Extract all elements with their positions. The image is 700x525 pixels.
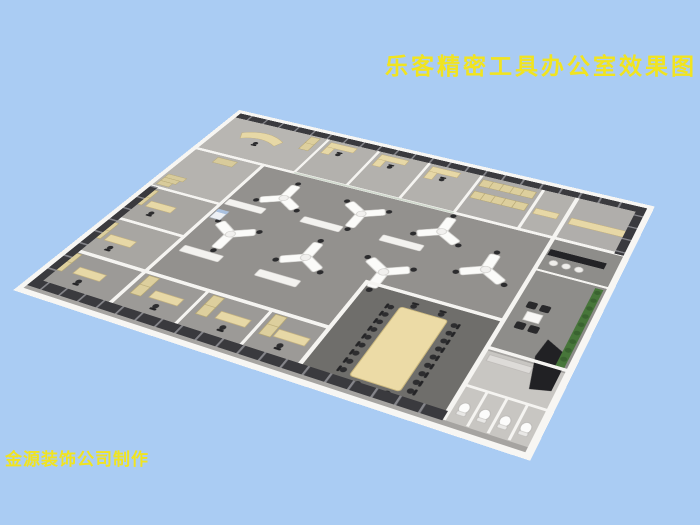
floorplan-svg	[13, 110, 655, 461]
credit-text: 金源装饰公司制作	[5, 445, 149, 470]
title-text: 乐客精密工具办公室效果图	[385, 47, 697, 81]
floorplan-3d-scene	[13, 110, 655, 461]
